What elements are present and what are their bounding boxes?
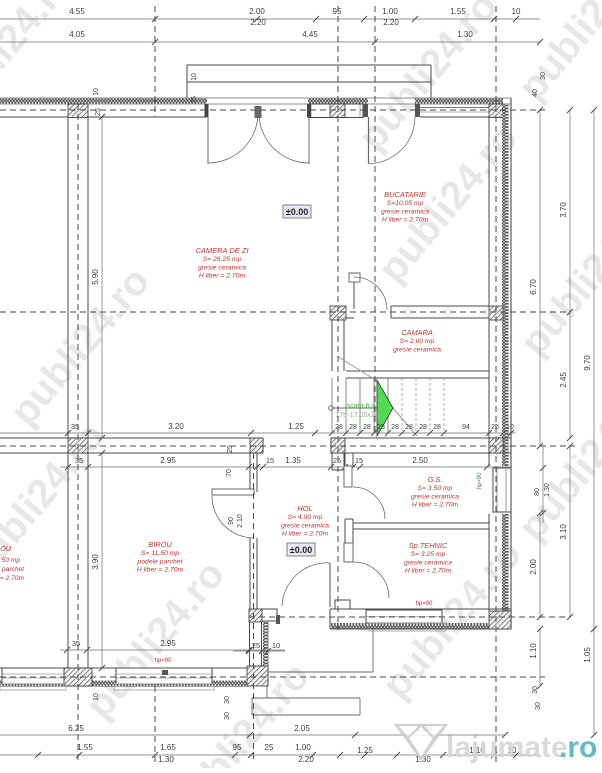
svg-text:BIROU: BIROU bbox=[148, 540, 172, 549]
svg-text:G.S.: G.S. bbox=[428, 475, 443, 484]
svg-text:1.30: 1.30 bbox=[158, 755, 174, 764]
svg-text:= 2.70m: = 2.70m bbox=[0, 575, 25, 582]
svg-text:1.30: 1.30 bbox=[544, 483, 551, 497]
svg-text:parchet: parchet bbox=[1, 566, 25, 573]
svg-text:10: 10 bbox=[272, 641, 280, 650]
svg-text:2.00: 2.00 bbox=[249, 7, 265, 16]
svg-text:1.35: 1.35 bbox=[285, 456, 301, 465]
svg-text:Sp.TEHNIC: Sp.TEHNIC bbox=[409, 541, 448, 550]
svg-text:90: 90 bbox=[228, 517, 235, 525]
svg-text:25: 25 bbox=[265, 743, 274, 752]
svg-text:15: 15 bbox=[266, 456, 274, 465]
svg-text:2.10: 2.10 bbox=[237, 514, 244, 528]
svg-text:S= 3.25 mp: S= 3.25 mp bbox=[411, 551, 446, 558]
svg-text:1.65: 1.65 bbox=[160, 743, 176, 752]
svg-text:30: 30 bbox=[532, 686, 539, 694]
svg-text:3.90: 3.90 bbox=[91, 554, 100, 570]
svg-text:94: 94 bbox=[462, 424, 470, 431]
svg-text:S= 26.25 mp: S= 26.25 mp bbox=[203, 256, 242, 263]
svg-text:5.90: 5.90 bbox=[91, 269, 100, 285]
svg-text:28: 28 bbox=[377, 424, 385, 431]
svg-text:28: 28 bbox=[391, 424, 399, 431]
svg-text:podele parchet: podele parchet bbox=[137, 558, 184, 565]
svg-text:28: 28 bbox=[349, 424, 357, 431]
svg-text:gresie ceramica: gresie ceramica bbox=[404, 559, 452, 566]
svg-text:CAMARA: CAMARA bbox=[401, 328, 433, 337]
svg-text:2.95: 2.95 bbox=[160, 456, 176, 465]
svg-text:2.95: 2.95 bbox=[160, 639, 176, 648]
svg-text:1.55: 1.55 bbox=[77, 743, 93, 752]
svg-text:40: 40 bbox=[532, 89, 539, 97]
svg-text:H liber = 2.70m: H liber = 2.70m bbox=[137, 567, 184, 574]
svg-text:95: 95 bbox=[333, 7, 342, 16]
svg-text:gresie ceramica: gresie ceramica bbox=[281, 522, 329, 529]
svg-text:S= 3.50 mp: S= 3.50 mp bbox=[418, 485, 453, 492]
svg-text:30: 30 bbox=[224, 712, 231, 720]
svg-text:CAMERA DE ZI: CAMERA DE ZI bbox=[195, 246, 248, 255]
svg-text:10: 10 bbox=[191, 73, 198, 81]
svg-text:35: 35 bbox=[72, 639, 80, 648]
svg-text:.ro: .ro bbox=[559, 731, 597, 764]
svg-text:2.20: 2.20 bbox=[383, 18, 399, 27]
svg-text:30: 30 bbox=[224, 696, 231, 704]
svg-text:S= 4.90 mp: S= 4.90 mp bbox=[288, 514, 323, 521]
svg-text:±0.00: ±0.00 bbox=[286, 207, 308, 217]
svg-text:1.05: 1.05 bbox=[583, 647, 592, 663]
svg-text:28: 28 bbox=[419, 424, 427, 431]
svg-text:gresie ceramica: gresie ceramica bbox=[198, 264, 246, 271]
svg-text:4.05: 4.05 bbox=[69, 30, 85, 39]
svg-text:2.20: 2.20 bbox=[298, 755, 314, 764]
svg-text:25: 25 bbox=[95, 108, 102, 116]
svg-text:1.00: 1.00 bbox=[295, 743, 311, 752]
svg-text:25: 25 bbox=[191, 96, 198, 104]
svg-text:80: 80 bbox=[534, 488, 541, 496]
svg-text:H liber = 2.70m: H liber = 2.70m bbox=[282, 531, 329, 538]
svg-text:3.10: 3.10 bbox=[559, 524, 568, 540]
svg-text:30: 30 bbox=[540, 72, 547, 80]
svg-text:95: 95 bbox=[233, 743, 242, 752]
svg-text:25: 25 bbox=[491, 424, 499, 431]
svg-text:50 mp: 50 mp bbox=[2, 557, 21, 564]
svg-text:gresie ceramica: gresie ceramica bbox=[381, 208, 429, 215]
svg-text:1.30: 1.30 bbox=[457, 30, 473, 39]
svg-text:hp=90: hp=90 bbox=[477, 472, 483, 490]
svg-text:9.70: 9.70 bbox=[583, 355, 592, 371]
svg-text:10: 10 bbox=[512, 7, 521, 16]
svg-text:4.55: 4.55 bbox=[69, 7, 85, 16]
svg-text:30: 30 bbox=[535, 702, 542, 710]
svg-text:HOL: HOL bbox=[297, 504, 312, 513]
svg-text:2.05: 2.05 bbox=[294, 724, 310, 733]
svg-text:28: 28 bbox=[363, 424, 371, 431]
svg-text:10: 10 bbox=[506, 424, 514, 431]
svg-text:1.10: 1.10 bbox=[529, 643, 538, 659]
svg-text:10: 10 bbox=[93, 693, 100, 701]
svg-text:1.00: 1.00 bbox=[382, 7, 398, 16]
svg-text:35: 35 bbox=[75, 456, 83, 465]
svg-text:17tr-17.05x28: 17tr-17.05x28 bbox=[335, 412, 378, 419]
svg-text:hp=90: hp=90 bbox=[155, 658, 173, 664]
svg-text:28: 28 bbox=[405, 424, 413, 431]
svg-text:OU: OU bbox=[0, 544, 12, 553]
svg-text:H liber = 2.70m: H liber = 2.70m bbox=[382, 217, 429, 224]
svg-text:BUCATARIE: BUCATARIE bbox=[384, 190, 427, 199]
svg-text:6.25: 6.25 bbox=[68, 724, 84, 733]
svg-text:S=10.05 mp: S=10.05 mp bbox=[387, 200, 424, 207]
svg-text:S= 11.50 mp: S= 11.50 mp bbox=[141, 550, 179, 557]
svg-text:H liber = 2.70m: H liber = 2.70m bbox=[405, 568, 452, 575]
svg-text:15: 15 bbox=[355, 456, 363, 465]
svg-text:lajumate: lajumate bbox=[446, 731, 568, 764]
svg-text:S= 2.60 mp: S= 2.60 mp bbox=[400, 338, 435, 345]
svg-text:gresie ceramica: gresie ceramica bbox=[393, 346, 441, 353]
svg-text:H liber = 2.70m: H liber = 2.70m bbox=[412, 502, 459, 509]
svg-text:25: 25 bbox=[333, 456, 341, 465]
svg-text:28: 28 bbox=[335, 424, 343, 431]
svg-text:2.50: 2.50 bbox=[412, 456, 428, 465]
svg-text:hp=90: hp=90 bbox=[416, 601, 434, 607]
svg-text:28: 28 bbox=[433, 424, 441, 431]
svg-text:gresie ceramica: gresie ceramica bbox=[411, 493, 459, 500]
svg-text:2.45: 2.45 bbox=[559, 372, 568, 388]
svg-text:2.20: 2.20 bbox=[250, 18, 266, 27]
svg-text:3.70: 3.70 bbox=[559, 202, 568, 218]
svg-text:±0.00: ±0.00 bbox=[290, 545, 312, 555]
svg-text:3.20: 3.20 bbox=[168, 422, 184, 431]
svg-text:10: 10 bbox=[93, 88, 100, 96]
svg-text:1.55: 1.55 bbox=[450, 7, 466, 16]
svg-text:6.70: 6.70 bbox=[529, 279, 538, 295]
svg-text:2.00: 2.00 bbox=[529, 559, 538, 575]
svg-text:1.25: 1.25 bbox=[288, 422, 304, 431]
svg-text:1.25: 1.25 bbox=[357, 746, 373, 755]
svg-text:scara b.a: scara b.a bbox=[347, 403, 376, 410]
svg-text:H liber = 2.70m: H liber = 2.70m bbox=[199, 273, 246, 280]
svg-text:4.45: 4.45 bbox=[302, 30, 318, 39]
svg-text:70: 70 bbox=[226, 469, 233, 477]
